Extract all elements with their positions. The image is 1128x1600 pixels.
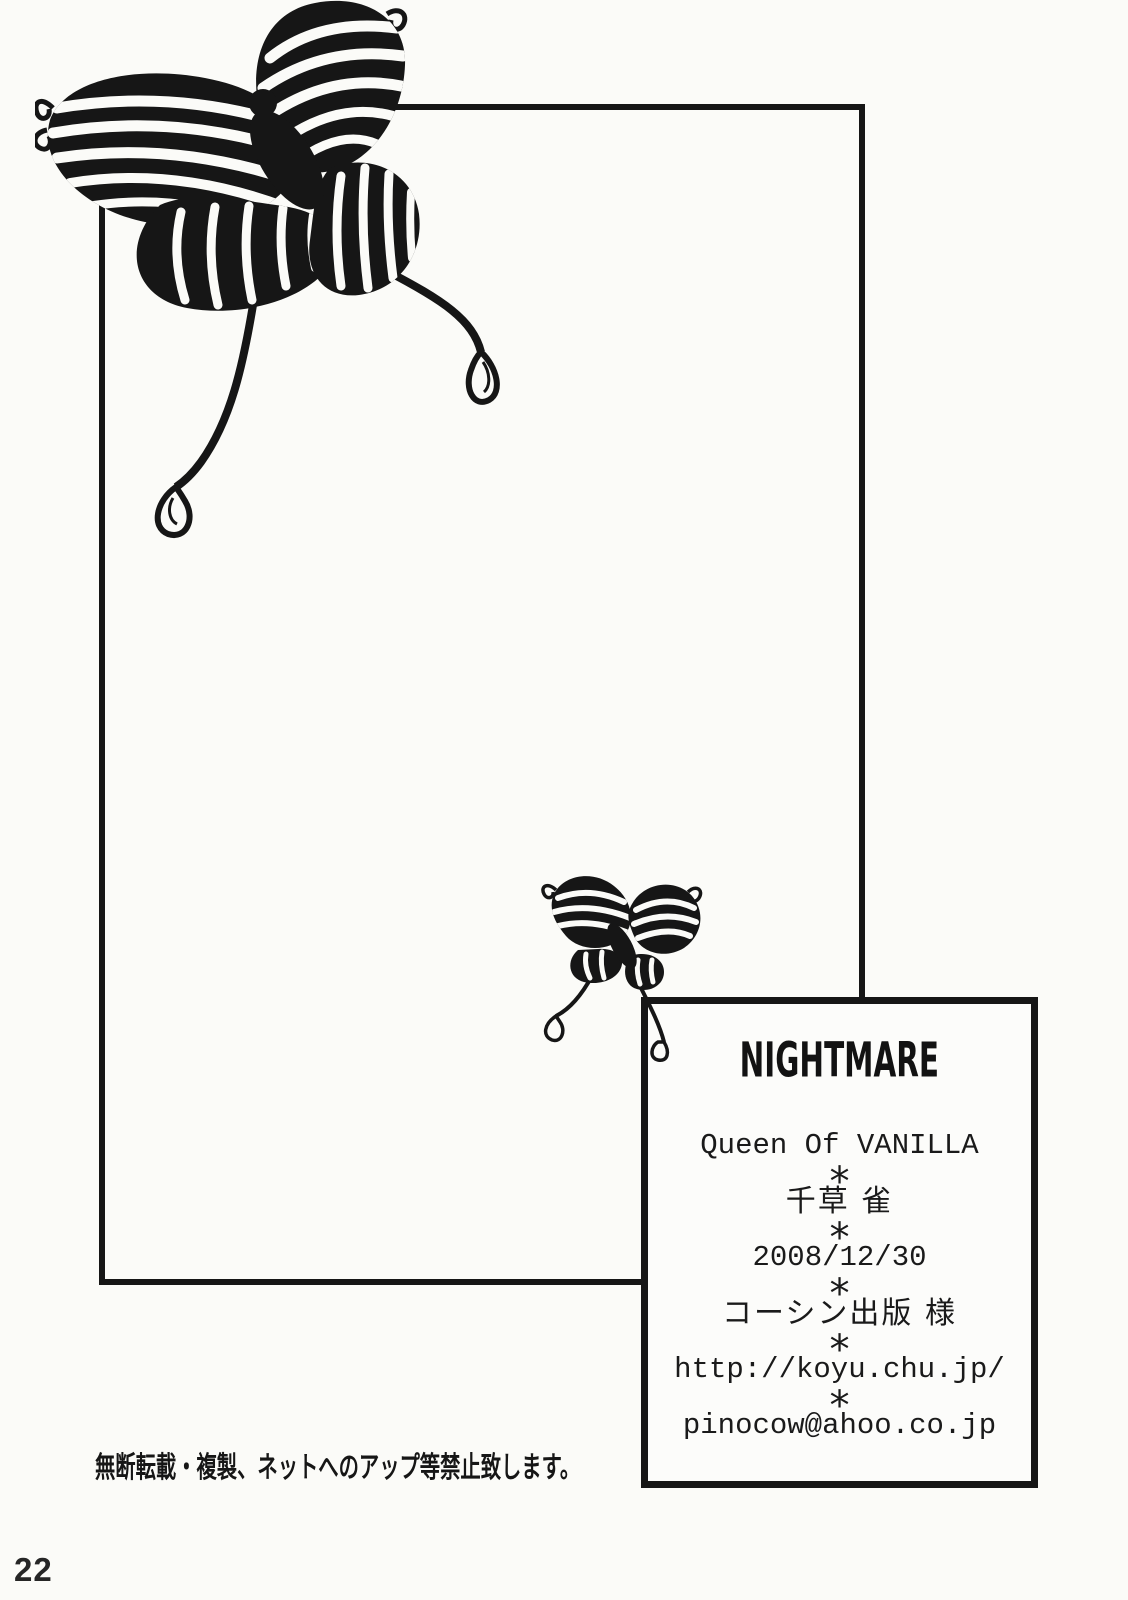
asterisk-separator: *: [648, 1168, 1031, 1196]
asterisk-separator: *: [648, 1392, 1031, 1420]
credit-title: Queen Of VANILLA: [648, 1132, 1031, 1160]
asterisk-separator: *: [648, 1224, 1031, 1252]
asterisk-separator: *: [648, 1336, 1031, 1364]
small-butterfly-icon: [540, 862, 710, 1067]
small-butterfly-wings: [552, 876, 701, 990]
asterisk-separator: *: [648, 1280, 1031, 1308]
nightmare-logo: NIGHTMARE: [740, 1032, 939, 1089]
credit-stack: Queen Of VANILLA * 千草 雀 * 2008/12/30 * コ…: [648, 1132, 1031, 1440]
page-number: 22: [14, 1551, 53, 1589]
scanned-page: NIGHTMARE Queen Of VANILLA * 千草 雀 * 2008…: [0, 0, 1128, 1600]
disclaimer-text: 無断転載・複製、ネットへのアップ等禁止致します。: [95, 1452, 580, 1484]
butterfly-wings: [48, 1, 420, 311]
large-butterfly-icon: [35, 0, 635, 545]
credits-box: NIGHTMARE Queen Of VANILLA * 千草 雀 * 2008…: [641, 997, 1038, 1488]
